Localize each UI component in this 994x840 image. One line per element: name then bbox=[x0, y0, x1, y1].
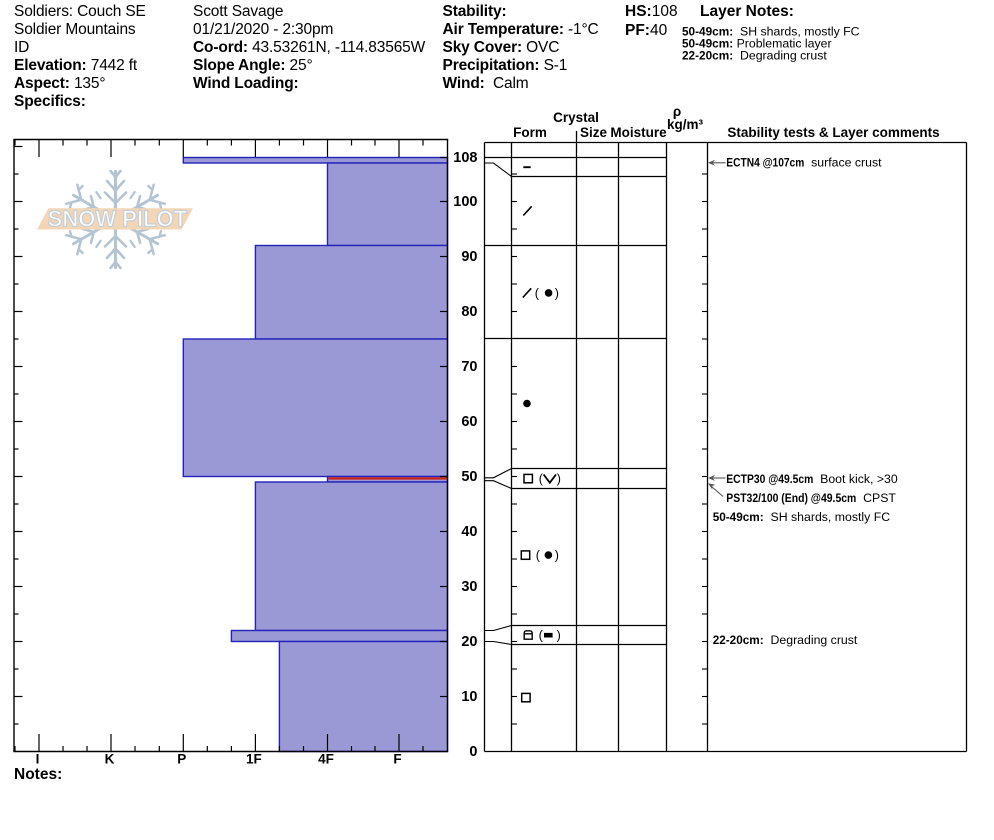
svg-text:ECTP30 @49.5cm Boot kick, >30: ECTP30 @49.5cm Boot kick, >30 bbox=[726, 472, 898, 486]
svg-text:Stability tests & Layer commen: Stability tests & Layer comments bbox=[727, 125, 939, 140]
svg-text:60: 60 bbox=[461, 414, 477, 430]
svg-text:40: 40 bbox=[461, 524, 477, 540]
svg-text:Notes:: Notes: bbox=[14, 766, 62, 783]
svg-text:ID: ID bbox=[14, 39, 29, 56]
svg-text:108: 108 bbox=[453, 150, 477, 166]
svg-text:Soldiers: Couch SE: Soldiers: Couch SE bbox=[14, 3, 146, 20]
svg-text:HS:108: HS:108 bbox=[625, 3, 678, 20]
svg-text:PF:40: PF:40 bbox=[625, 22, 668, 39]
svg-text:10: 10 bbox=[461, 689, 477, 705]
svg-text:Layer Notes:: Layer Notes: bbox=[700, 3, 794, 20]
svg-text:Aspect: 135°: Aspect: 135° bbox=[14, 75, 105, 92]
svg-text:90: 90 bbox=[461, 249, 477, 265]
svg-text:Sky Cover: OVC: Sky Cover: OVC bbox=[443, 39, 560, 56]
svg-text:30: 30 bbox=[461, 579, 477, 595]
svg-text:Elevation: 7442 ft: Elevation: 7442 ft bbox=[14, 57, 138, 74]
svg-text:Air Temperature: -1°C: Air Temperature: -1°C bbox=[443, 21, 599, 38]
svg-text:50-49cm: SH shards, mostly FC: 50-49cm: SH shards, mostly FC bbox=[713, 510, 891, 524]
svg-text:Precipitation: S-1: Precipitation: S-1 bbox=[443, 57, 568, 74]
svg-text:4F: 4F bbox=[318, 752, 334, 767]
svg-text:Crystal: Crystal bbox=[553, 110, 599, 125]
svg-text:Size: Size bbox=[580, 125, 608, 140]
svg-text:Specifics:: Specifics: bbox=[14, 93, 86, 110]
svg-text:PST32/100 (End) @49.5cm CPST: PST32/100 (End) @49.5cm CPST bbox=[726, 491, 896, 505]
svg-text:F: F bbox=[393, 752, 401, 767]
svg-text:70: 70 bbox=[461, 359, 477, 375]
svg-text:): ) bbox=[557, 472, 561, 486]
svg-text:K: K bbox=[105, 752, 115, 767]
svg-text:I: I bbox=[36, 752, 40, 767]
svg-text:Slope Angle: 25°: Slope Angle: 25° bbox=[193, 57, 313, 74]
svg-text:Moisture: Moisture bbox=[610, 125, 667, 140]
svg-text:100: 100 bbox=[453, 194, 477, 210]
svg-text:22-20cm: Degrading crust: 22-20cm: Degrading crust bbox=[682, 48, 827, 62]
svg-text:): ) bbox=[557, 629, 561, 643]
svg-text:20: 20 bbox=[461, 634, 477, 650]
svg-text:80: 80 bbox=[461, 304, 477, 320]
svg-text:Wind Loading:: Wind Loading: bbox=[193, 75, 299, 92]
svg-text:Soldier Mountains: Soldier Mountains bbox=[14, 21, 136, 38]
svg-text:0: 0 bbox=[469, 744, 477, 760]
svg-text:1F: 1F bbox=[246, 752, 262, 767]
svg-text:): ) bbox=[555, 287, 559, 301]
svg-text:50: 50 bbox=[461, 469, 477, 485]
svg-text:Co-ord: 43.53261N, -114.83565W: Co-ord: 43.53261N, -114.83565W bbox=[193, 39, 426, 56]
svg-text:Scott Savage: Scott Savage bbox=[193, 3, 283, 20]
svg-text:ECTN4 @107cm surface crust: ECTN4 @107cm surface crust bbox=[726, 155, 882, 169]
svg-text:Wind: Calm: Wind: Calm bbox=[443, 75, 529, 92]
svg-text:Stability:: Stability: bbox=[443, 3, 507, 20]
svg-text:01/21/2020 - 2:30pm: 01/21/2020 - 2:30pm bbox=[193, 21, 333, 38]
svg-text:Form: Form bbox=[513, 125, 547, 140]
svg-text:SNOW PILOT: SNOW PILOT bbox=[48, 205, 188, 231]
svg-text:P: P bbox=[177, 752, 186, 767]
svg-text:kg/m³: kg/m³ bbox=[667, 117, 704, 132]
svg-text:): ) bbox=[555, 549, 559, 563]
svg-text:22-20cm: Degrading crust: 22-20cm: Degrading crust bbox=[713, 633, 858, 647]
